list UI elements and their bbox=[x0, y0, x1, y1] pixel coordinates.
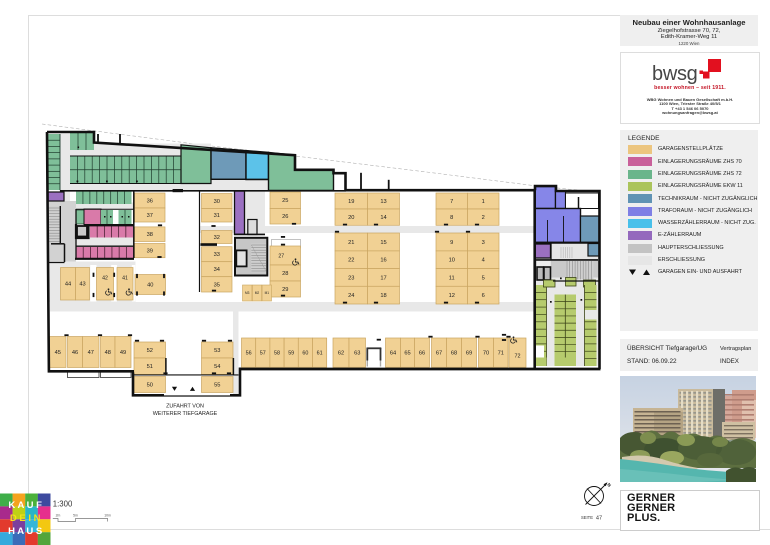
svg-text:36: 36 bbox=[147, 198, 153, 204]
svg-text:23: 23 bbox=[348, 275, 354, 281]
svg-text:4: 4 bbox=[482, 258, 485, 264]
svg-text:54: 54 bbox=[214, 364, 220, 370]
svg-text:60: 60 bbox=[302, 351, 308, 357]
svg-text:29: 29 bbox=[282, 287, 288, 293]
svg-text:25: 25 bbox=[282, 198, 288, 204]
svg-text:46: 46 bbox=[72, 350, 78, 356]
svg-text:12: 12 bbox=[449, 293, 455, 299]
svg-text:1: 1 bbox=[482, 199, 485, 205]
svg-text:26: 26 bbox=[282, 214, 288, 220]
svg-text:17: 17 bbox=[380, 275, 386, 281]
svg-text:14: 14 bbox=[380, 215, 386, 221]
svg-text:72: 72 bbox=[515, 354, 521, 360]
svg-text:31: 31 bbox=[214, 213, 220, 219]
svg-text:48: 48 bbox=[105, 350, 111, 356]
svg-text:30: 30 bbox=[214, 199, 220, 205]
svg-text:39: 39 bbox=[147, 249, 153, 255]
svg-text:22: 22 bbox=[348, 258, 354, 264]
svg-text:M3: M3 bbox=[245, 291, 250, 295]
svg-text:49: 49 bbox=[120, 350, 126, 356]
svg-text:3: 3 bbox=[482, 240, 485, 246]
svg-text:71: 71 bbox=[498, 351, 504, 357]
svg-text:8: 8 bbox=[450, 215, 453, 221]
svg-text:32: 32 bbox=[214, 235, 220, 241]
svg-text:15: 15 bbox=[380, 240, 386, 246]
svg-text:58: 58 bbox=[274, 351, 280, 357]
svg-text:50: 50 bbox=[147, 382, 153, 388]
svg-text:41: 41 bbox=[122, 276, 128, 282]
svg-text:56: 56 bbox=[246, 351, 252, 357]
svg-text:9: 9 bbox=[450, 240, 453, 246]
svg-text:5m: 5m bbox=[73, 514, 78, 518]
svg-text:H A U S: H A U S bbox=[8, 526, 42, 537]
svg-text:13: 13 bbox=[380, 199, 386, 205]
svg-text:68: 68 bbox=[451, 351, 457, 357]
svg-text:38: 38 bbox=[147, 232, 153, 238]
svg-text:11: 11 bbox=[449, 275, 455, 281]
svg-text:52: 52 bbox=[147, 348, 153, 354]
svg-text:40: 40 bbox=[147, 282, 153, 288]
svg-text:57: 57 bbox=[260, 351, 266, 357]
svg-text:2: 2 bbox=[482, 215, 485, 221]
svg-text:16: 16 bbox=[380, 258, 386, 264]
svg-text:33: 33 bbox=[214, 252, 220, 258]
svg-text:28: 28 bbox=[282, 271, 288, 277]
svg-text:5: 5 bbox=[482, 275, 485, 281]
svg-text:34: 34 bbox=[214, 267, 220, 273]
svg-text:53: 53 bbox=[214, 348, 220, 354]
svg-text:70: 70 bbox=[483, 351, 489, 357]
svg-text:42: 42 bbox=[102, 276, 108, 282]
svg-text:M2: M2 bbox=[255, 291, 260, 295]
svg-text:2m: 2m bbox=[56, 514, 61, 518]
svg-text:47: 47 bbox=[596, 516, 602, 522]
svg-text:27: 27 bbox=[278, 253, 284, 259]
svg-text:59: 59 bbox=[288, 351, 294, 357]
svg-text:63: 63 bbox=[354, 351, 360, 357]
svg-text:65: 65 bbox=[404, 351, 410, 357]
svg-text:35: 35 bbox=[214, 282, 220, 288]
svg-text:62: 62 bbox=[338, 351, 344, 357]
svg-text:7: 7 bbox=[450, 199, 453, 205]
svg-text:K A U F: K A U F bbox=[8, 500, 42, 511]
svg-text:10: 10 bbox=[449, 258, 455, 264]
svg-text:WEITERER TIEFGARAGE: WEITERER TIEFGARAGE bbox=[153, 411, 218, 417]
svg-text:18: 18 bbox=[380, 293, 386, 299]
svg-text:SEITE: SEITE bbox=[581, 515, 593, 520]
svg-text:1:300: 1:300 bbox=[53, 500, 73, 509]
svg-text:47: 47 bbox=[88, 350, 94, 356]
svg-text:55: 55 bbox=[214, 382, 220, 388]
svg-text:ZUFAHRT VON: ZUFAHRT VON bbox=[166, 404, 204, 410]
svg-text:61: 61 bbox=[317, 351, 323, 357]
svg-text:44: 44 bbox=[65, 282, 71, 288]
svg-text:66: 66 bbox=[419, 351, 425, 357]
svg-text:21: 21 bbox=[348, 240, 354, 246]
svg-text:24: 24 bbox=[348, 293, 354, 299]
svg-text:64: 64 bbox=[390, 351, 396, 357]
svg-text:51: 51 bbox=[147, 364, 153, 370]
svg-text:67: 67 bbox=[436, 351, 442, 357]
svg-text:6: 6 bbox=[482, 293, 485, 299]
svg-text:45: 45 bbox=[55, 350, 61, 356]
svg-text:69: 69 bbox=[466, 351, 472, 357]
svg-text:37: 37 bbox=[147, 213, 153, 219]
svg-text:19: 19 bbox=[348, 199, 354, 205]
svg-text:M1: M1 bbox=[265, 291, 270, 295]
svg-text:D E I N: D E I N bbox=[10, 513, 41, 524]
svg-text:20: 20 bbox=[348, 215, 354, 221]
svg-text:43: 43 bbox=[79, 282, 85, 288]
svg-text:10m: 10m bbox=[104, 514, 111, 518]
